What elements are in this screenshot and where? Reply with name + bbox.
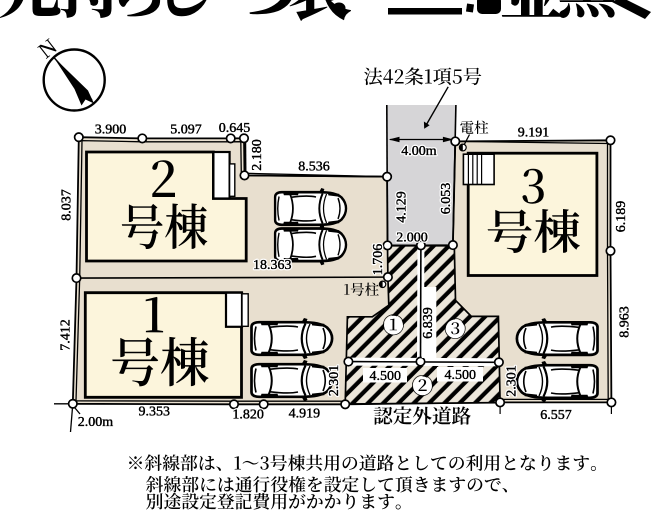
svg-text:2.301: 2.301 xyxy=(505,365,520,397)
svg-text:0.645: 0.645 xyxy=(219,121,251,136)
svg-text:8.963: 8.963 xyxy=(617,306,632,338)
svg-text:8.037: 8.037 xyxy=(59,189,74,221)
svg-text:4.500: 4.500 xyxy=(369,369,401,384)
svg-text:6.189: 6.189 xyxy=(614,201,629,233)
svg-text:2.301: 2.301 xyxy=(327,365,342,397)
svg-text:4.500: 4.500 xyxy=(445,368,477,383)
svg-text:7.412: 7.412 xyxy=(58,319,73,351)
svg-text:2.00m: 2.00m xyxy=(78,415,114,430)
svg-text:6.557: 6.557 xyxy=(540,408,572,423)
svg-text:5.097: 5.097 xyxy=(170,123,202,138)
svg-text:3.900: 3.900 xyxy=(95,123,127,138)
svg-text:9.191: 9.191 xyxy=(518,126,550,141)
svg-text:4.919: 4.919 xyxy=(289,407,321,422)
svg-text:4.129: 4.129 xyxy=(394,191,409,223)
svg-text:1.820: 1.820 xyxy=(232,408,264,423)
svg-text:6.053: 6.053 xyxy=(439,183,454,215)
svg-text:4.00m: 4.00m xyxy=(401,144,437,159)
svg-text:9.353: 9.353 xyxy=(138,405,170,420)
svg-text:2.000: 2.000 xyxy=(396,231,428,246)
svg-text:18.363: 18.363 xyxy=(253,258,292,273)
svg-text:1.706: 1.706 xyxy=(371,244,386,276)
svg-text:6.839: 6.839 xyxy=(421,307,436,339)
svg-text:2.180: 2.180 xyxy=(250,139,265,171)
svg-text:8.536: 8.536 xyxy=(298,160,330,175)
